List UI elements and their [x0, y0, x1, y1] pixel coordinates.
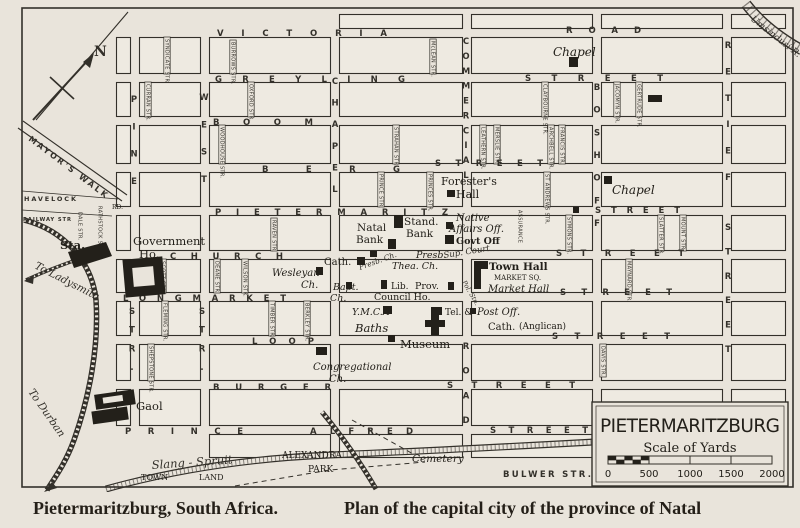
street-label-vertical: F — [594, 219, 600, 229]
street-label-vertical: O — [462, 52, 469, 62]
lane-label: PRINCE STR. — [378, 174, 384, 208]
scale-bar-checker — [633, 460, 641, 464]
city-block — [732, 173, 786, 207]
city-block — [732, 302, 786, 336]
city-block — [472, 83, 593, 117]
government-house-icon — [132, 266, 155, 287]
street-label-vertical: F — [725, 173, 731, 183]
poi-label: MARKET SQ. — [494, 274, 541, 282]
street-label-vertical: R — [199, 344, 206, 354]
poi-label: Bapt. — [332, 282, 359, 293]
poi-label: Native — [455, 213, 490, 224]
lane-label: CLAYBOURNE STR. — [542, 84, 548, 135]
lane-label: DAVIS STR. — [600, 346, 606, 377]
street-label-vertical: A — [463, 156, 470, 166]
street-label-vertical: M — [462, 82, 470, 92]
lane-label: ST ANDREWS STR. — [544, 174, 550, 225]
lane-label: LEATHERN STR. — [480, 127, 486, 170]
scale-bar-checker — [624, 456, 632, 460]
scale-bar-checker — [608, 456, 616, 460]
city-block — [117, 83, 131, 117]
street-label-vertical: . — [130, 363, 133, 373]
building-icon — [388, 239, 396, 249]
building-icon — [383, 306, 392, 314]
street-label-vertical: E — [332, 163, 338, 173]
city-block — [732, 216, 786, 251]
street-label-vertical: S — [594, 128, 600, 138]
street-label-vertical: R — [463, 111, 470, 121]
poi-label: ALEXANDRA — [281, 451, 342, 461]
poi-label: RD. — [112, 204, 123, 211]
building-icon — [604, 176, 612, 184]
city-block — [340, 83, 463, 117]
street-label: BULWER STR. — [503, 470, 591, 480]
street-label-vertical: E — [725, 321, 731, 331]
city-block — [117, 216, 131, 251]
city-block — [602, 15, 723, 29]
map-title: PIETERMARITZBURG — [600, 416, 780, 437]
street-label-vertical: D — [462, 416, 469, 426]
building-icon — [448, 282, 454, 290]
building-icon — [381, 280, 387, 289]
compass-north-label: N — [94, 44, 107, 60]
poi-label: Bank — [356, 234, 384, 246]
poi-label: LAND — [199, 473, 224, 482]
poi-label: Prov. — [415, 281, 439, 292]
city-block — [117, 126, 131, 164]
street-label-vertical: C — [463, 126, 469, 136]
street-label-vertical: A — [463, 391, 470, 401]
city-plan-map: VICTORIAROADGREYLINGSTREETBOOMBERGSTREET… — [0, 0, 800, 492]
city-block — [602, 38, 723, 74]
city-block — [340, 15, 463, 29]
poi-label: Chapel — [612, 183, 655, 197]
lane-label: DEANE STR. — [214, 261, 220, 294]
street-label-vertical: M — [462, 67, 470, 77]
building-icon — [569, 57, 578, 67]
lane-label: BURROWS STR. — [230, 42, 236, 85]
poi-label: Museum — [400, 337, 450, 351]
street-label-vertical: E — [725, 296, 731, 306]
street-label-vertical: N — [130, 150, 137, 160]
street-label: HAVELOCK — [24, 195, 77, 203]
lane-label: FLEMING STR. — [162, 303, 168, 342]
city-block — [210, 173, 331, 207]
street-label-vertical: C — [332, 77, 338, 87]
scale-tick-label: 1500 — [718, 469, 743, 480]
city-block — [472, 345, 593, 381]
poi-label: Post Off. — [476, 307, 520, 318]
poi-label: Lib. — [391, 282, 409, 292]
street-label-vertical: I — [464, 141, 467, 151]
street-label-vertical: A — [332, 120, 339, 130]
street-label-vertical: S — [129, 307, 135, 317]
city-block — [602, 302, 723, 336]
poi-label: TOWN — [141, 473, 168, 482]
street-label-vertical: O — [593, 174, 600, 184]
street-label-vertical: R — [129, 344, 136, 354]
city-block — [340, 126, 463, 164]
street-label-vertical: E — [463, 97, 469, 107]
building-icon — [357, 257, 365, 265]
scale-tick-label: 2000 — [759, 469, 784, 480]
lane-label: McLEAN STR. — [430, 41, 436, 77]
lane-label: WILSON STR. — [242, 261, 248, 297]
city-block — [210, 390, 331, 426]
street-label-vertical: E — [201, 120, 207, 130]
caption-place: Pietermaritzburg, South Africa. — [33, 498, 278, 519]
lane-label: CURRAN STR. — [145, 84, 151, 121]
scale-bar-checker — [641, 456, 649, 460]
city-block — [210, 83, 331, 117]
city-block — [472, 390, 593, 426]
city-block — [210, 38, 331, 74]
city-block — [140, 126, 201, 164]
building-icon — [316, 347, 327, 355]
poi-label: Bank — [406, 228, 434, 240]
city-block — [210, 126, 331, 164]
street-label-vertical: P — [131, 95, 137, 105]
city-block — [602, 260, 723, 293]
street-label-vertical: B — [594, 83, 600, 93]
poi-label: Town Hall — [489, 261, 548, 273]
lane-label: JACOMYN STR. — [614, 83, 620, 124]
building-icon — [573, 207, 579, 213]
poi-label: Gaol — [136, 399, 163, 413]
lane-label: SYMONS STR. — [566, 217, 572, 255]
street-label-vertical: F — [594, 196, 600, 206]
city-block — [210, 216, 331, 251]
scale-tick-label: 500 — [639, 469, 658, 480]
street-label-vertical: S — [201, 148, 207, 158]
map-screenshot: VICTORIAROADGREYLINGSTREETBOOMBERGSTREET… — [0, 0, 800, 528]
street-label-vertical: T — [725, 345, 731, 355]
street-label-vertical: R — [725, 272, 732, 282]
street-label-vertical: C — [463, 37, 469, 47]
scale-caption: Scale of Yards — [643, 441, 736, 456]
lane-label: DALE STR. — [77, 212, 83, 241]
street-label-vertical: T — [725, 247, 731, 257]
street-label-vertical: P — [332, 142, 338, 152]
poi-label: Council Ho. — [374, 292, 431, 303]
poi-label: Ch. — [301, 280, 318, 291]
building-icon — [388, 335, 395, 342]
lane-label: PRINCES STR. — [427, 174, 433, 212]
street-label-vertical: O — [593, 106, 600, 116]
lane-label: TIMBER STR. — [269, 302, 275, 338]
poi-label: Ch. — [329, 374, 346, 385]
building-icon — [370, 251, 377, 257]
scale-bar-checker — [616, 460, 624, 464]
poi-label: Stand. — [404, 216, 439, 228]
poi-label: Government — [133, 234, 205, 248]
poi-label: Cath. — [324, 257, 351, 268]
lane-label: SHEPSTONE STR. — [148, 346, 154, 393]
building-icon — [346, 282, 352, 289]
poi-label: Chapel — [553, 45, 596, 59]
poi-label: Market Hall — [487, 284, 549, 295]
street-label-vertical: O — [462, 367, 469, 377]
city-block — [732, 345, 786, 381]
lane-label: BERKLEY STR. — [304, 303, 310, 342]
poi-label: Hall — [456, 188, 480, 201]
caption-row: Pietermaritzburg, South Africa. Plan of … — [0, 490, 800, 528]
city-block — [472, 15, 593, 29]
poi-label: Thea. Ch. — [392, 261, 438, 272]
street-label-vertical: S — [725, 223, 731, 233]
street-label-vertical: E — [131, 177, 137, 187]
street-label-vertical: S — [199, 307, 205, 317]
poi-label: Baths — [354, 321, 388, 335]
street-label-vertical: T — [725, 94, 731, 104]
lane-label: MAYNARD STR. — [626, 261, 632, 302]
city-block — [140, 173, 201, 207]
building-icon — [445, 235, 454, 244]
street-label-vertical: H — [331, 99, 338, 109]
poi-label: Presb. — [415, 250, 447, 261]
city-block — [140, 302, 201, 336]
lane-label: WOODHOUSE STR. — [219, 127, 225, 178]
street-label-vertical: T — [129, 326, 135, 336]
poi-label: Govt Off — [456, 236, 501, 247]
street-label-vertical: R — [725, 41, 732, 51]
street-label-vertical: W — [199, 93, 209, 103]
street-label-vertical: E — [725, 67, 731, 77]
poi-label: Cath. — [488, 322, 515, 333]
scale-tick-label: 1000 — [677, 469, 702, 480]
city-block — [732, 83, 786, 117]
city-block — [732, 260, 786, 293]
street-label-vertical: H — [593, 151, 600, 161]
street-label: RAILWAY STR — [23, 217, 71, 223]
lane-label: STRAHAN STR. — [393, 127, 399, 167]
lane-label: MERSLIE STR. — [494, 127, 500, 165]
city-block — [602, 126, 723, 164]
street-label-vertical: I — [132, 122, 135, 132]
city-block — [117, 38, 131, 74]
street-label-vertical: T — [201, 175, 207, 185]
scale-tick-label: 0 — [605, 469, 611, 480]
lane-label: SLATTER STR. — [658, 217, 664, 255]
street-label-vertical: L — [332, 185, 338, 195]
lane-label: GERTRUDE STR. — [636, 84, 642, 128]
poi-label: Natal — [357, 222, 387, 234]
city-block — [340, 390, 463, 426]
street-label-vertical: I — [726, 120, 729, 130]
lane-label: ARCHBELL STR. — [548, 127, 554, 170]
lane-label: SYNDICATE STR. — [164, 39, 170, 84]
poi-label: Affairs Off. — [448, 224, 504, 235]
city-block — [472, 126, 593, 164]
city-block — [340, 38, 463, 74]
building-icon — [394, 215, 403, 228]
building-icon — [470, 308, 476, 314]
lane-label: MOUNT STR. — [680, 217, 686, 252]
street-label-vertical: R — [463, 342, 470, 352]
poi-label: Wesleyan — [272, 268, 320, 279]
building-icon — [447, 190, 455, 197]
lane-label: FRANCIS STR. — [559, 127, 565, 165]
poi-label: Ch. — [330, 293, 346, 304]
street-label-vertical: T — [199, 326, 205, 336]
city-block — [602, 345, 723, 381]
poi-label: Tel. & — [445, 308, 472, 318]
building-icon — [316, 267, 323, 275]
lane-label: ASSURANCE — [517, 210, 523, 243]
city-block — [732, 126, 786, 164]
caption-description: Plan of the capital city of the province… — [344, 498, 701, 519]
street-label-vertical: E — [725, 147, 731, 157]
poi-label: Congregational — [313, 362, 391, 373]
building-icon — [446, 222, 453, 229]
lane-label: OXFORD STR. — [248, 84, 254, 121]
poi-label: PARK — [308, 465, 334, 475]
building-icon — [431, 307, 442, 315]
poi-label: (Anglican) — [519, 321, 566, 332]
poi-label: Cemetery — [412, 453, 465, 465]
building-icon — [648, 95, 662, 102]
street-label-vertical: . — [200, 363, 203, 373]
lane-label: RAVEN STR. — [271, 220, 277, 253]
poi-label: Forester's — [441, 175, 497, 188]
